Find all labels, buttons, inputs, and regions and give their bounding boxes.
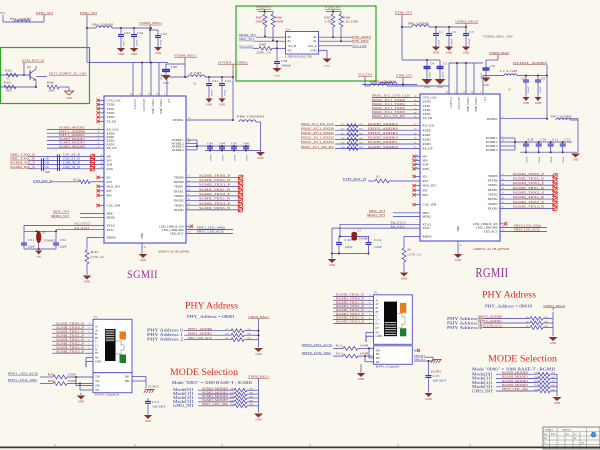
svg-text:10uF: 10uF: [123, 40, 126, 46]
svg-text:PROC_EC1_RXD3: PROC_EC1_RXD3: [301, 140, 335, 144]
svg-text:22pF: 22pF: [59, 246, 68, 249]
svg-text:PHY_Address = 00001: PHY_Address = 00001: [187, 314, 235, 319]
svg-text:TRXP0: TRXP0: [488, 174, 498, 178]
svg-text:TRXN0: TRXN0: [488, 179, 498, 183]
svg-text:VDDO_REG: VDDO_REG: [151, 99, 154, 114]
svg-text:DI-: DI-: [96, 379, 100, 383]
svg-text:C10: C10: [345, 239, 353, 242]
svg-text:VCC2V3: VCC2V3: [358, 73, 372, 77]
svg-text:100nF: 100nF: [160, 39, 163, 46]
svg-text:100nF: 100nF: [233, 154, 236, 161]
svg-text:2.37K 1%: 2.37K 1%: [407, 254, 422, 257]
svg-text:AVCC2V5: AVCC2V5: [457, 97, 460, 110]
svg-text:AVDDL4: AVDDL4: [486, 148, 498, 152]
svg-text:SON: SON: [107, 167, 114, 171]
svg-text:AR8031ev: AR8031ev: [562, 429, 572, 432]
svg-text:C63_SI_N: C63_SI_N: [63, 165, 81, 169]
svg-text:RGMII: RGMII: [476, 265, 509, 280]
svg-text:DI+: DI+: [96, 384, 101, 388]
svg-text:GND: GND: [141, 233, 144, 239]
svg-text:R2: R2: [341, 124, 344, 126]
svg-text:D+: D+: [376, 326, 380, 330]
svg-text:C52: C52: [60, 239, 67, 242]
svg-text:GND: GND: [483, 84, 489, 87]
svg-text:SGMII_TRX3_N: SGMII_TRX3_N: [199, 206, 231, 210]
svg-text:100nF: 100nF: [224, 89, 227, 96]
svg-text:TRXN1: TRXN1: [174, 189, 184, 193]
svg-text:GND: GND: [36, 256, 41, 259]
svg-text:GND: GND: [424, 86, 430, 89]
svg-text:SGMII_TRX2_N: SGMII_TRX2_N: [199, 197, 231, 201]
svg-text:100nF: 100nF: [160, 73, 163, 80]
svg-text:TRXP3: TRXP3: [488, 202, 498, 206]
svg-text:4.7uH: 4.7uH: [190, 72, 201, 75]
svg-text:RX_DV: RX_DV: [107, 146, 118, 150]
svg-text:100nF: 100nF: [538, 156, 541, 163]
svg-text:C48: C48: [45, 162, 50, 165]
svg-text:AVDDL4: AVDDL4: [172, 148, 184, 152]
svg-text:GND: GND: [145, 419, 151, 423]
svg-text:Ck: Ck: [544, 443, 546, 445]
svg-text:GND: GND: [310, 48, 316, 52]
svg-text:SH2: SH2: [125, 380, 130, 383]
svg-text:RQ_XTLI: RQ_XTLI: [391, 224, 405, 228]
svg-text:Sh: Sh: [574, 438, 576, 440]
svg-text:RGMII_MODE3: RGMII_MODE3: [368, 136, 399, 140]
svg-text:100R: 100R: [360, 345, 369, 348]
svg-text:Rev: Rev: [566, 434, 569, 436]
svg-text:GPIO_INT: GPIO_INT: [472, 389, 494, 393]
svg-text:DVDDL: DVDDL: [173, 118, 184, 122]
svg-text:EGND: EGND: [431, 371, 441, 374]
svg-text:TRXP0: TRXP0: [174, 175, 184, 179]
svg-text:GND: GND: [457, 226, 460, 232]
svg-text:SH1: SH1: [125, 376, 130, 379]
svg-text:GND: GND: [131, 52, 137, 56]
svg-text:PROC_EC1_RX_CLK: PROC_EC1_RX_CLK: [301, 122, 335, 126]
svg-text:VDDO_REG0: VDDO_REG0: [455, 20, 478, 24]
svg-text:PHY0_LED_100a: PHY0_LED_100a: [302, 351, 332, 355]
svg-text:1K: 1K: [6, 78, 9, 81]
svg-text:XO_XTLI: XO_XTLI: [74, 226, 89, 230]
svg-text:R87: R87: [324, 17, 332, 20]
svg-text:XTLI: XTLI: [423, 226, 430, 230]
svg-text:VCC2V5: VCC2V5: [449, 97, 452, 108]
svg-text:AVCC2V5: AVCC2V5: [142, 99, 145, 112]
svg-text:SON: SON: [423, 167, 430, 171]
svg-text:GND: GND: [401, 277, 407, 281]
svg-text:R31: R31: [225, 338, 229, 340]
svg-text:R13: R13: [336, 352, 344, 355]
svg-text:VDDO_REG1: VDDO_REG1: [139, 21, 162, 25]
svg-text:MODE Selection: MODE Selection: [488, 355, 557, 365]
svg-text:RGMII_MODE0: RGMII_MODE0: [368, 145, 399, 149]
svg-text:ENE_MDC: ENE_MDC: [352, 39, 369, 43]
svg-text:GND: GND: [535, 101, 541, 105]
svg-text:C50: C50: [45, 166, 50, 169]
svg-text:C44: C44: [219, 141, 226, 145]
svg-text:Vref_B: Vref_B: [288, 44, 297, 48]
svg-text:MDIO_3V3: MDIO_3V3: [51, 214, 69, 218]
svg-text:PPS: PPS: [107, 193, 112, 197]
svg-text:1nF/2KV: 1nF/2KV: [433, 380, 447, 383]
svg-text:C23: C23: [124, 31, 131, 35]
svg-text:R86: R86: [275, 17, 283, 20]
svg-text:C2: C2: [452, 30, 457, 34]
svg-text:C14: C14: [374, 239, 382, 242]
svg-text:R9: R9: [526, 326, 529, 328]
svg-text:12pF: 12pF: [345, 246, 354, 249]
svg-text:FB0 120OHM: FB0 120OHM: [408, 22, 429, 26]
svg-text:RGMII_TRX3_P: RGMII_TRX3_P: [336, 320, 364, 324]
svg-text:100nF: 100nF: [136, 39, 139, 46]
svg-text:RGMII_TRX0_N: RGMII_TRX0_N: [513, 177, 545, 181]
svg-text:1.5K_DNP: 1.5K_DNP: [343, 21, 359, 24]
svg-text:CLK_25M: CLK_25M: [107, 203, 121, 207]
svg-text:RST: RST: [107, 180, 113, 184]
svg-text:PROC_EC1_RXD0: PROC_EC1_RXD0: [301, 126, 335, 130]
svg-text:FB3 120OHM: FB3 120OHM: [551, 114, 573, 118]
svg-text:VDDH_REG1: VDDH_REG1: [174, 54, 197, 58]
svg-text:RXD3: RXD3: [423, 142, 432, 146]
svg-text:SGMII: SGMII: [127, 267, 158, 281]
svg-text:GND: GND: [550, 341, 556, 345]
svg-text:VDDH_REG0: VDDH_REG0: [489, 51, 509, 55]
svg-text:RBIAS: RBIAS: [107, 236, 116, 240]
svg-text:Doc: Doc: [544, 434, 547, 436]
svg-text:C46: C46: [45, 158, 50, 161]
svg-text:VDDO_REG1: VDDO_REG1: [248, 315, 269, 319]
svg-text:R22: R22: [91, 251, 100, 254]
svg-text:ETH_RST_B: ETH_RST_B: [33, 179, 52, 183]
svg-text:EGND: EGND: [148, 386, 158, 389]
svg-text:C10: C10: [540, 138, 547, 142]
svg-text:U4: U4: [286, 27, 290, 31]
svg-text:MDIO: MDIO: [423, 215, 432, 219]
svg-text:WOL_INT: WOL_INT: [423, 184, 437, 188]
svg-text:AR8031-AL1B-QFN48: AR8031-AL1B-QFN48: [158, 250, 189, 254]
svg-text:TRXP3: TRXP3: [174, 203, 184, 207]
svg-text:PHY0_ADDR1: PHY0_ADDR1: [368, 131, 399, 135]
svg-text:LX: LX: [167, 99, 170, 103]
svg-text:RJ45_Gigabit: RJ45_Gigabit: [95, 393, 119, 397]
svg-text:100nF: 100nF: [442, 71, 445, 78]
svg-text:RGMII_TRX3_N: RGMII_TRX3_N: [513, 204, 545, 208]
svg-text:C11: C11: [552, 138, 559, 142]
svg-text:FB6 120OHM: FB6 120OHM: [237, 115, 265, 119]
svg-text:ETH0_3V3: ETH0_3V3: [395, 11, 412, 15]
svg-text:100nF: 100nF: [468, 38, 471, 45]
svg-text:DVDDL: DVDDL: [487, 117, 498, 121]
svg-text:DI+: DI+: [96, 375, 101, 379]
svg-text:PHY1_ADDR1: PHY1_ADDR1: [188, 331, 213, 335]
svg-text:VDDO_REG: VDDO_REG: [474, 97, 477, 112]
svg-text:RX_DV: RX_DV: [423, 147, 434, 151]
svg-text:100nF: 100nF: [451, 38, 454, 45]
svg-text:2.37K 1%: 2.37K 1%: [90, 256, 105, 259]
svg-text:RJ45_Gigabit: RJ45_Gigabit: [376, 364, 400, 368]
svg-text:SGMII_TRX3_P: SGMII_TRX3_P: [56, 349, 84, 353]
svg-text:PHY1_LED_ACTa: PHY1_LED_ACTa: [8, 372, 39, 376]
svg-text:GND: GND: [329, 263, 335, 267]
svg-text:R11: R11: [336, 345, 344, 348]
svg-text:FB1 120OHM: FB1 120OHM: [374, 79, 397, 83]
svg-text:10nF: 10nF: [45, 171, 51, 174]
svg-text:PHY1_LED_100a: PHY1_LED_100a: [8, 378, 38, 382]
svg-text:GND: GND: [255, 352, 261, 356]
svg-text:D-: D-: [376, 321, 379, 325]
svg-text:MDIO_3V3: MDIO_3V3: [367, 213, 385, 217]
svg-text:VDDO_REG1: VDDO_REG1: [248, 375, 269, 379]
svg-text:R49: R49: [230, 400, 234, 402]
svg-text:SGMII_TRX1_N: SGMII_TRX1_N: [199, 187, 231, 191]
svg-text:C12: C12: [564, 138, 571, 142]
svg-text:GND: GND: [95, 360, 101, 364]
svg-text:PPS: PPS: [423, 193, 428, 197]
svg-text:100nF: 100nF: [550, 156, 553, 163]
svg-text:GND: GND: [437, 86, 443, 89]
svg-text:GND: GND: [425, 397, 431, 401]
svg-text:SGMII_MODE0: SGMII_MODE0: [59, 144, 85, 148]
svg-text:LED_ACT: LED_ACT: [170, 232, 184, 236]
svg-text:TRXN3: TRXN3: [488, 206, 498, 210]
svg-text:GND: GND: [376, 334, 382, 338]
svg-text:GND: GND: [572, 158, 578, 162]
svg-text:RXD0: RXD0: [423, 128, 432, 132]
svg-text:C5: C5: [443, 62, 448, 66]
svg-text:RGMII_TRX2_N: RGMII_TRX2_N: [513, 195, 545, 199]
svg-text:TRXP2: TRXP2: [174, 194, 184, 198]
svg-text:R89: R89: [259, 44, 267, 47]
svg-text:TRXP1: TRXP1: [174, 185, 184, 189]
svg-text:SIZE A4: SIZE A4: [545, 429, 554, 432]
svg-text:A1: A1: [313, 39, 317, 43]
svg-text:150R: 150R: [67, 380, 76, 383]
svg-text:PHY1_LED_ACTa: PHY1_LED_ACTa: [188, 336, 213, 340]
svg-text:TX_EN: TX_EN: [423, 116, 434, 120]
svg-text:R66: R66: [47, 82, 55, 85]
svg-text:C43: C43: [207, 141, 214, 145]
svg-text:GND: GND: [554, 401, 560, 405]
svg-text:C2V5: C2V5: [0, 11, 5, 15]
svg-text:SGMII_TRX2_P: SGMII_TRX2_P: [199, 192, 230, 196]
svg-text:22R: 22R: [359, 124, 363, 126]
svg-text:R22: R22: [534, 385, 538, 387]
svg-text:GND: GND: [66, 97, 72, 100]
svg-text:AR8031-AL1B-QFN48: AR8031-AL1B-QFN48: [473, 247, 510, 251]
svg-text:PHY: PHY: [551, 434, 556, 436]
svg-text:FB4 120OHM: FB4 120OHM: [92, 23, 113, 27]
svg-text:ETH_RST_B: ETH_RST_B: [343, 177, 366, 181]
svg-text:DI-: DI-: [96, 388, 100, 392]
svg-text:GND: GND: [219, 103, 225, 107]
svg-text:C4: C4: [430, 62, 435, 66]
svg-text:C6: C6: [491, 64, 496, 68]
svg-text:ETH0_3V3: ETH0_3V3: [396, 74, 412, 78]
svg-text:FB3 120OHM: FB3 120OHM: [10, 17, 31, 21]
svg-text:DUT_PORST_B_1.8V: DUT_PORST_B_1.8V: [49, 72, 88, 76]
svg-text:10K: 10K: [5, 90, 12, 93]
svg-text:GND: GND: [84, 280, 90, 284]
svg-text:PHY0_LED_ACTa: PHY0_LED_ACTa: [478, 324, 503, 328]
svg-text:VDDO_REG: VDDO_REG: [159, 99, 162, 114]
svg-text:PROC_EC1_RXD1: PROC_EC1_RXD1: [301, 131, 335, 135]
svg-text:100nF: 100nF: [525, 156, 528, 163]
svg-text:C46: C46: [243, 141, 250, 145]
svg-text:LX: LX: [483, 97, 486, 101]
svg-text:9: 9: [369, 299, 370, 301]
svg-text:22R: 22R: [359, 129, 363, 131]
svg-text:100nF: 100nF: [539, 86, 542, 93]
svg-text:GND: GND: [523, 101, 529, 105]
svg-text:GND: GND: [163, 82, 169, 85]
svg-text:100R: 100R: [360, 352, 369, 355]
svg-text:GND: GND: [118, 52, 124, 56]
svg-text:GND: GND: [463, 51, 469, 55]
svg-text:PHY0_LED_ACTa: PHY0_LED_ACTa: [302, 343, 333, 347]
svg-text:ETH1_3V3: ETH1_3V3: [36, 11, 53, 15]
svg-text:1nF/2KV: 1nF/2KV: [152, 406, 166, 409]
svg-text:C15: C15: [433, 375, 441, 378]
svg-text:PHY Address 2: PHY Address 2: [447, 325, 482, 330]
svg-text:PHY1_LED_ACTa: PHY1_LED_ACTa: [197, 230, 225, 234]
svg-text:TRXN2: TRXN2: [488, 197, 498, 201]
svg-text:INT: INT: [107, 189, 112, 193]
svg-text:SGMII_TRX3_P: SGMII_TRX3_P: [199, 201, 230, 205]
svg-text:RST: RST: [423, 179, 429, 183]
svg-text:10uF: 10uF: [438, 39, 441, 45]
svg-text:RGMII_TRX3_P: RGMII_TRX3_P: [513, 200, 544, 204]
svg-text:C51: C51: [28, 239, 35, 242]
svg-text:MDC_3V3: MDC_3V3: [239, 37, 254, 41]
svg-text:100nF: 100nF: [245, 154, 248, 161]
svg-text:PROC_EC1_TX_EN: PROC_EC1_TX_EN: [372, 114, 406, 118]
svg-text:PHY1_ADDR0: PHY1_ADDR0: [188, 327, 213, 331]
svg-text:GPIO_INT: GPIO_INT: [173, 404, 195, 408]
svg-text:D+: D+: [95, 351, 99, 355]
svg-text:SGMII_RX_N: SGMII_RX_N: [10, 165, 36, 169]
svg-text:C41: C41: [212, 79, 219, 83]
svg-text:C42: C42: [225, 79, 232, 83]
svg-text:PHY0_ADDR0: PHY0_ADDR0: [478, 315, 503, 319]
svg-text:430R: 430R: [275, 21, 284, 24]
svg-text:GND: GND: [78, 400, 84, 404]
svg-text:CLK_25M: CLK_25M: [423, 203, 437, 207]
svg-text:RGMII_TRX0_P: RGMII_TRX0_P: [513, 172, 544, 176]
svg-text:C34: C34: [137, 31, 144, 35]
svg-text:SGMII_TRX1_P: SGMII_TRX1_P: [199, 183, 230, 187]
svg-text:PROC_EC1_RX_DV: PROC_EC1_RX_DV: [301, 145, 335, 149]
svg-text:GND: GND: [155, 51, 161, 55]
svg-text:PHY_Address = 00010: PHY_Address = 00010: [485, 304, 533, 309]
svg-text:PROC_EC1_RXD2: PROC_EC1_RXD2: [301, 136, 335, 140]
svg-text:R88: R88: [343, 17, 351, 20]
svg-text:1.5K: 1.5K: [324, 21, 332, 24]
svg-text:TRXP1: TRXP1: [488, 183, 498, 187]
svg-text:RGMII_MODE2: RGMII_MODE2: [368, 122, 399, 126]
svg-text:TRXN2: TRXN2: [174, 199, 184, 203]
svg-text:GND: GND: [455, 258, 461, 262]
svg-text:MODE Selection: MODE Selection: [170, 368, 238, 378]
svg-text:PHY0_LED_ACTa: PHY0_LED_ACTa: [514, 228, 541, 232]
svg-text:PHY0_ADDR1: PHY0_ADDR1: [478, 319, 503, 323]
svg-text:R87: R87: [256, 17, 264, 20]
svg-text:WOL_INT: WOL_INT: [107, 184, 121, 188]
svg-text:330R: 330R: [255, 21, 264, 24]
svg-text:C1: C1: [439, 30, 444, 34]
svg-text:GND: GND: [446, 51, 452, 55]
svg-text:100nF: 100nF: [527, 86, 530, 93]
svg-text:12pF: 12pF: [374, 246, 383, 249]
svg-text:DVDDL_SOME0: DVDDL_SOME0: [513, 61, 547, 65]
svg-text:RGMII_TRX1_N: RGMII_TRX1_N: [513, 186, 545, 190]
svg-text:22R: 22R: [359, 147, 363, 149]
svg-text:GND: GND: [140, 258, 146, 262]
svg-text:SGMII_TRX0_P: SGMII_TRX0_P: [199, 173, 230, 177]
svg-text:C39: C39: [281, 60, 288, 63]
svg-text:22pF: 22pF: [27, 246, 36, 249]
svg-text:L1 4.7uH: L1 4.7uH: [500, 69, 517, 73]
svg-text:RBIAS: RBIAS: [423, 235, 432, 239]
svg-text:VDD3V3: VDD3V3: [256, 6, 271, 10]
svg-text:100nF: 100nF: [281, 65, 292, 68]
svg-text:GND: GND: [433, 51, 439, 55]
svg-text:100nF: 100nF: [209, 154, 212, 161]
svg-text:VDDO_REG 1.8V: VDDO_REG 1.8V: [483, 35, 514, 39]
svg-text:LED_ACT: LED_ACT: [484, 230, 498, 234]
svg-text:C45: C45: [231, 141, 238, 145]
svg-text:U1: U1: [508, 89, 512, 92]
svg-text:150R: 150R: [67, 373, 76, 376]
svg-text:VDDO_REG: VDDO_REG: [466, 97, 469, 112]
svg-text:C9: C9: [528, 138, 535, 142]
svg-text:PHY Address 2: PHY Address 2: [147, 337, 183, 342]
svg-text:1: 1: [89, 360, 90, 362]
svg-text:GND: GND: [255, 418, 261, 422]
svg-text:INT: INT: [423, 188, 428, 192]
svg-text:DI-: DI-: [376, 360, 380, 364]
svg-text:PHY Address: PHY Address: [185, 302, 238, 312]
svg-text:TX_EN: TX_EN: [107, 119, 118, 123]
svg-text:22R: 22R: [359, 138, 363, 140]
svg-text:25MHZ: 25MHZ: [44, 240, 56, 243]
svg-text:VDD1.8V: VDD1.8V: [325, 6, 342, 10]
svg-text:9: 9: [89, 328, 90, 330]
svg-text:LSF0102DCTR: LSF0102DCTR: [285, 55, 312, 59]
svg-text:10K: 10K: [48, 90, 55, 93]
svg-text:TRXN3: TRXN3: [174, 208, 184, 212]
svg-text:100nF: 100nF: [429, 71, 432, 78]
svg-text:RGMII_TRX1_P: RGMII_TRX1_P: [513, 181, 544, 185]
svg-text:2: 2: [89, 356, 90, 358]
svg-text:100nF: 100nF: [221, 154, 224, 161]
svg-text:RX_CLK: RX_CLK: [423, 124, 436, 128]
svg-text:X3: X3: [42, 232, 46, 235]
svg-text:C37: C37: [161, 32, 168, 36]
svg-text:2/8: 2/8: [581, 443, 584, 445]
svg-text:ETH_RST_B: ETH_RST_B: [22, 59, 44, 63]
svg-text:TRXN0: TRXN0: [174, 180, 184, 184]
svg-text:PHY1_LED_100a: PHY1_LED_100a: [202, 402, 229, 406]
svg-text:VDDO_REG0: VDDO_REG0: [543, 304, 565, 308]
svg-text:C46: C46: [171, 65, 178, 69]
svg-text:R12: R12: [341, 143, 345, 145]
svg-text:RGMII_TRX2_P: RGMII_TRX2_P: [513, 191, 544, 195]
svg-text:100nF: 100nF: [211, 89, 214, 96]
svg-text:VCC1.8V: VCC1.8V: [352, 44, 368, 48]
svg-text:DVDDL_SOME1: DVDDL_SOME1: [218, 61, 248, 65]
svg-text:22R: 22R: [359, 143, 363, 145]
